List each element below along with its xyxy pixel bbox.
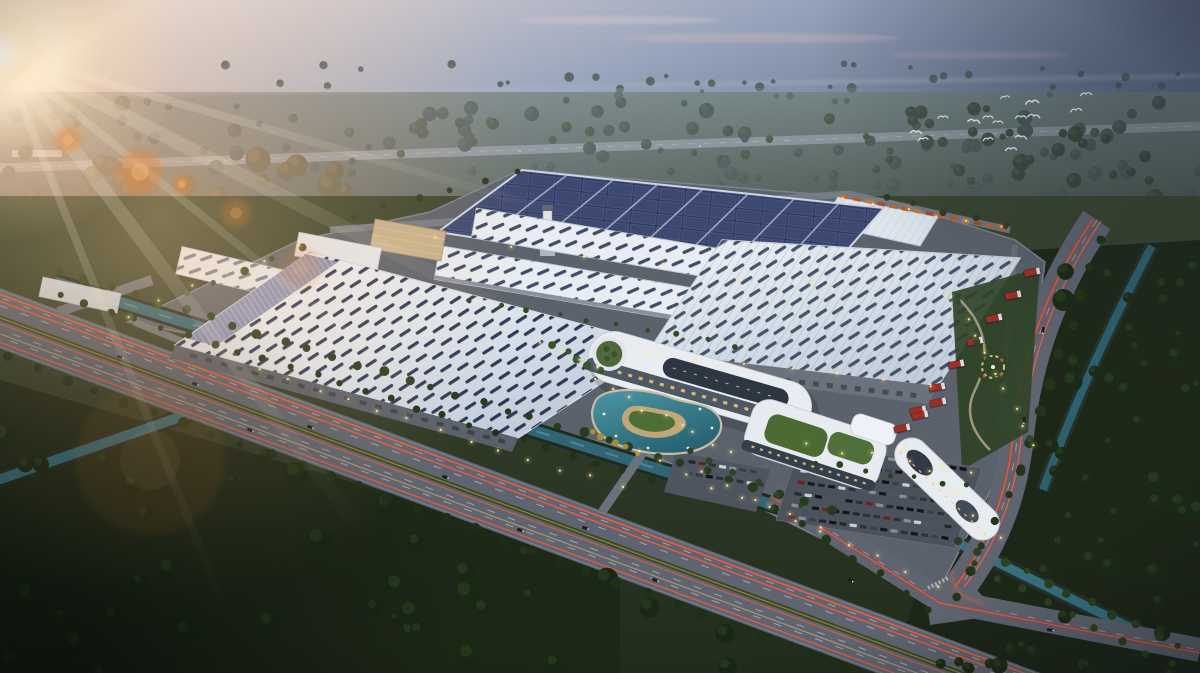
vignette <box>0 0 1200 673</box>
scene-svg <box>0 0 1200 673</box>
aerial-factory-campus-rendering <box>0 0 1200 673</box>
